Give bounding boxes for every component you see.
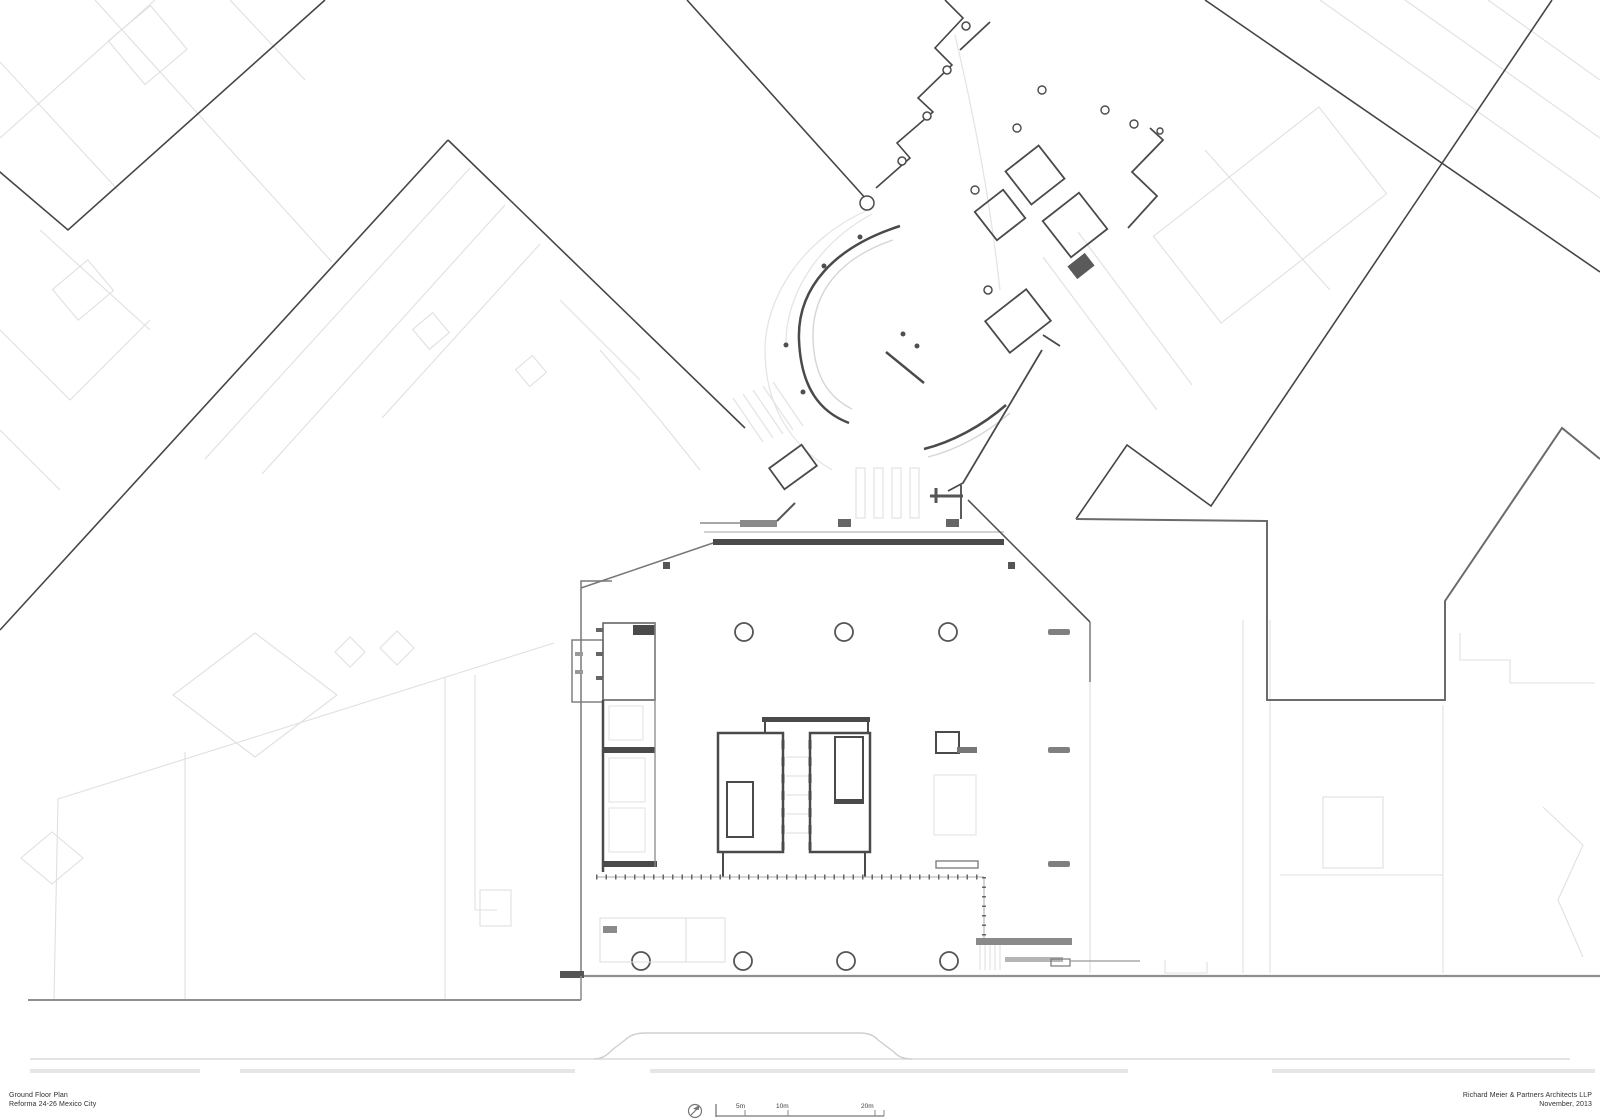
title-block-right: Richard Meier & Partners Architects LLP … xyxy=(1463,1091,1592,1109)
drawing-sheet: 5m 10m 20m Ground Floor Plan Reforma 24-… xyxy=(0,0,1600,1120)
tower-plan xyxy=(560,488,1140,978)
scale-label-20m: 20m xyxy=(861,1103,874,1110)
adjacent-building-cluster xyxy=(960,22,1163,353)
background-city-blocks xyxy=(0,0,1600,1000)
entry-drive xyxy=(733,22,1042,519)
drawing-title: Ground Floor Plan xyxy=(9,1091,96,1100)
tree-circles xyxy=(860,22,992,294)
north-wall xyxy=(713,539,1004,545)
firm-name: Richard Meier & Partners Architects LLP xyxy=(1463,1091,1592,1100)
curtain-wall-mullions xyxy=(596,877,984,938)
scale-bar: 5m 10m 20m xyxy=(689,1103,885,1118)
service-cores xyxy=(718,717,870,877)
drop-off-bay xyxy=(594,1033,912,1059)
title-block-left: Ground Floor Plan Reforma 24-26 Mexico C… xyxy=(9,1091,96,1109)
north-arrow-icon xyxy=(689,1105,702,1118)
reforma-street xyxy=(28,976,1600,1071)
scale-label-10m: 10m xyxy=(776,1103,789,1110)
site-plan-drawing: 5m 10m 20m xyxy=(0,0,1600,1120)
guard-booth xyxy=(769,445,817,490)
drawing-date: November, 2013 xyxy=(1463,1100,1592,1109)
east-building-block xyxy=(1076,428,1600,700)
scale-label-5m: 5m xyxy=(736,1103,745,1110)
east-wall-bars xyxy=(1048,629,1070,867)
project-name: Reforma 24-26 Mexico City xyxy=(9,1100,96,1109)
